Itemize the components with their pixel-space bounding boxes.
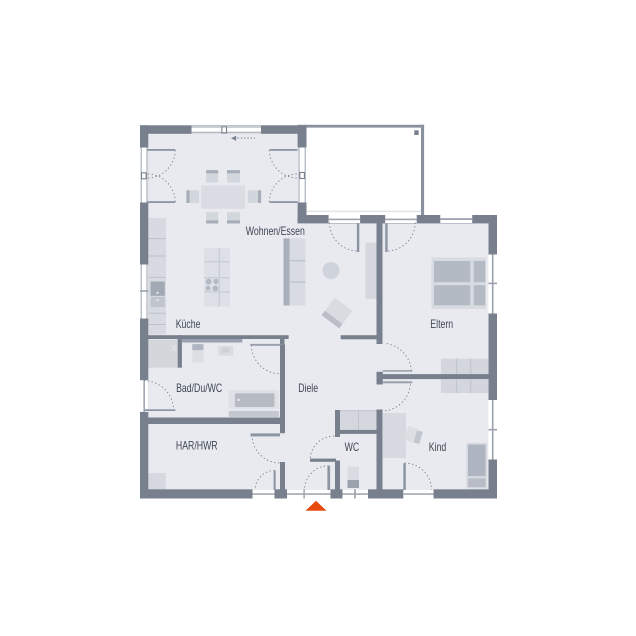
svg-text:WC: WC [345, 442, 360, 454]
svg-text:HAR/HWR: HAR/HWR [176, 440, 218, 452]
svg-text:Kind: Kind [429, 442, 447, 454]
svg-text:Diele: Diele [298, 383, 318, 395]
svg-text:Wohnen/Essen: Wohnen/Essen [246, 226, 305, 238]
svg-text:Bad/Du/WC: Bad/Du/WC [176, 383, 222, 395]
svg-text:Küche: Küche [176, 319, 201, 331]
svg-text:Eltern: Eltern [430, 319, 453, 331]
